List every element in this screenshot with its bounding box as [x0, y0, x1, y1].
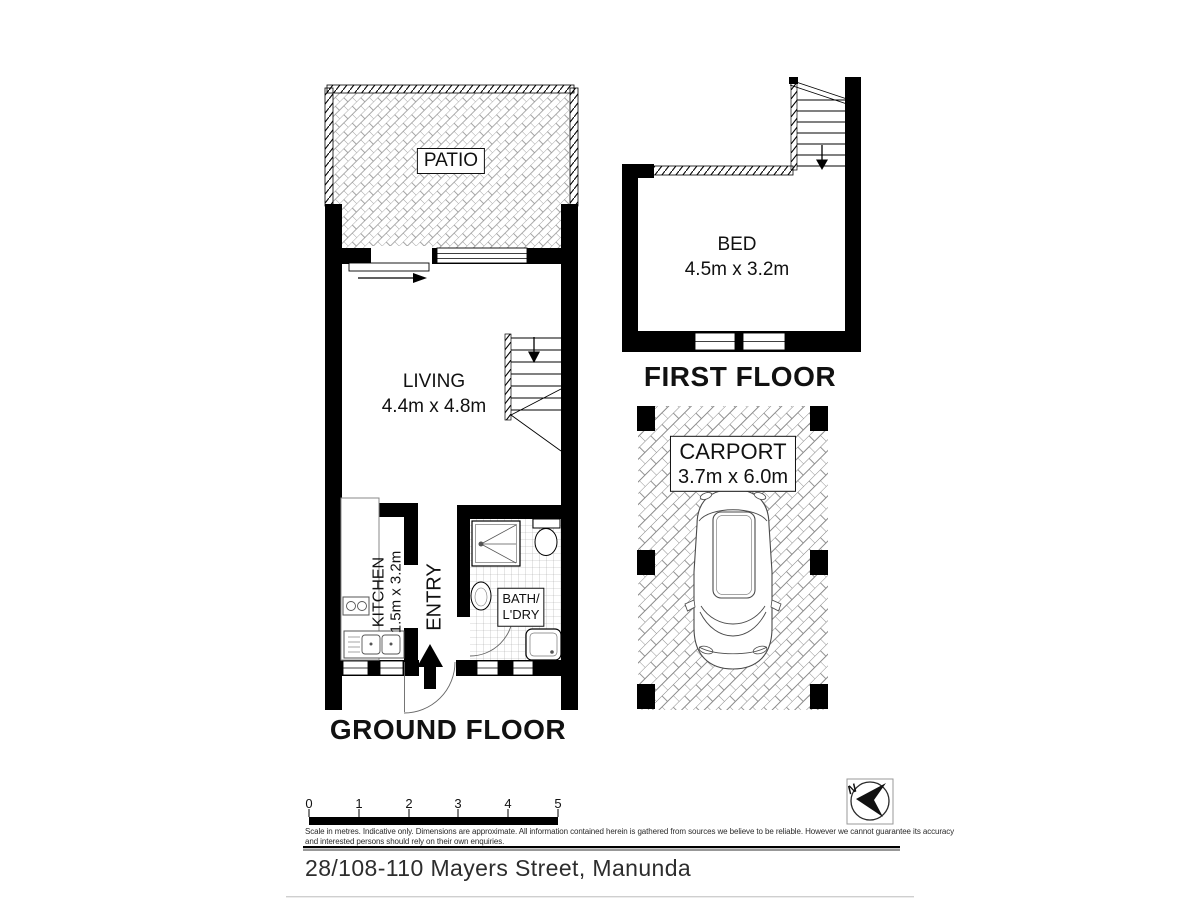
scale-tick-label: 3: [454, 796, 461, 811]
car-top-view: [685, 489, 781, 669]
scale-bar-rect: [309, 817, 558, 825]
shower: [472, 521, 520, 566]
stair-down-arrow-icon: [528, 352, 540, 364]
scale-ticks: [309, 809, 558, 817]
kitchen-room-name: KITCHEN: [371, 551, 389, 634]
living-room-name: LIVING: [382, 369, 487, 394]
window: [437, 248, 527, 263]
carport-dims: 3.7m x 6.0m: [678, 465, 788, 489]
patio-balustrade-top: [327, 85, 574, 93]
carport-post: [637, 550, 655, 575]
bath-label-line1: BATH/: [502, 591, 539, 607]
wall: [404, 503, 418, 565]
wall: [325, 204, 342, 710]
living-room-label: LIVING 4.4m x 4.8m: [382, 369, 487, 419]
living-room-dims: 4.4m x 4.8m: [382, 394, 487, 419]
bath-label-line2: L'DRY: [502, 607, 539, 623]
bath-laundry-label: BATH/ L'DRY: [497, 588, 544, 627]
window: [343, 661, 368, 675]
sliding-door-arrowhead-icon: [413, 273, 427, 283]
wall: [457, 505, 470, 617]
kitchen-room-dims: 1.5m x 3.2m: [389, 551, 406, 634]
kitchen-room-label: KITCHEN 1.5m x 3.2m: [371, 551, 406, 634]
footer-faint-rule: [286, 896, 914, 897]
staircase-first: [790, 80, 847, 170]
scale-tick-label: 0: [305, 796, 312, 811]
window: [477, 661, 498, 675]
carport-post: [810, 684, 828, 709]
scale-tick-label: 4: [504, 796, 511, 811]
kitchen-sink: [344, 631, 404, 658]
scale-tick-label: 1: [355, 796, 362, 811]
ground-floor-title: GROUND FLOOR: [330, 714, 566, 746]
carport-post: [637, 684, 655, 709]
cooktop: [343, 597, 369, 615]
divider-rule-thin: [303, 850, 900, 851]
floorplan-drawing: [0, 0, 1200, 900]
scale-tick-label: 5: [554, 796, 561, 811]
patio-balustrade-left: [325, 88, 333, 206]
entry-room-label: ENTRY: [424, 563, 447, 630]
window: [380, 661, 403, 675]
wall: [622, 164, 654, 178]
disclaimer-line2: and interested persons should rely on th…: [305, 837, 504, 846]
carport-post: [637, 406, 655, 431]
sliding-door-panel: [349, 263, 429, 271]
divider-rule: [303, 846, 900, 848]
wall: [561, 204, 578, 710]
wall: [845, 77, 861, 352]
stair-down-arrow-icon: [816, 160, 828, 171]
scale-tick-label: 2: [405, 796, 412, 811]
wall: [622, 164, 638, 352]
first-floor-title: FIRST FLOOR: [644, 361, 836, 393]
property-address: 28/108-110 Mayers Street, Manunda: [305, 855, 691, 882]
window: [695, 333, 735, 350]
carport-post: [810, 550, 828, 575]
disclaimer-line1: Scale in metres. Indicative only. Dimens…: [305, 827, 954, 836]
carport-label: CARPORT 3.7m x 6.0m: [670, 436, 796, 492]
entry-direction-arrow-icon: [417, 644, 443, 667]
window: [513, 661, 533, 675]
bed-balustrade: [652, 166, 793, 175]
laundry-tub: [526, 629, 561, 660]
bed-room-label: BED 4.5m x 3.2m: [685, 232, 790, 282]
wall: [622, 331, 861, 352]
sliding-door-opening: [371, 246, 432, 265]
wall: [457, 505, 578, 519]
patio-balustrade-right: [570, 88, 578, 206]
carport-post: [810, 406, 828, 431]
entry-direction-arrow-shaft: [424, 667, 436, 689]
patio-room-label: PATIO: [417, 148, 485, 174]
floorplan-page: PATIO LIVING 4.4m x 4.8m KITCHEN 1.5m x …: [0, 0, 1200, 900]
bed-room-dims: 4.5m x 3.2m: [685, 257, 790, 282]
basin: [471, 582, 491, 610]
bed-room-name: BED: [685, 232, 790, 257]
carport-name: CARPORT: [678, 439, 788, 465]
wall: [404, 628, 418, 661]
first-floor-plan: [622, 77, 861, 352]
scale-bar: [309, 809, 558, 825]
window: [743, 333, 785, 350]
